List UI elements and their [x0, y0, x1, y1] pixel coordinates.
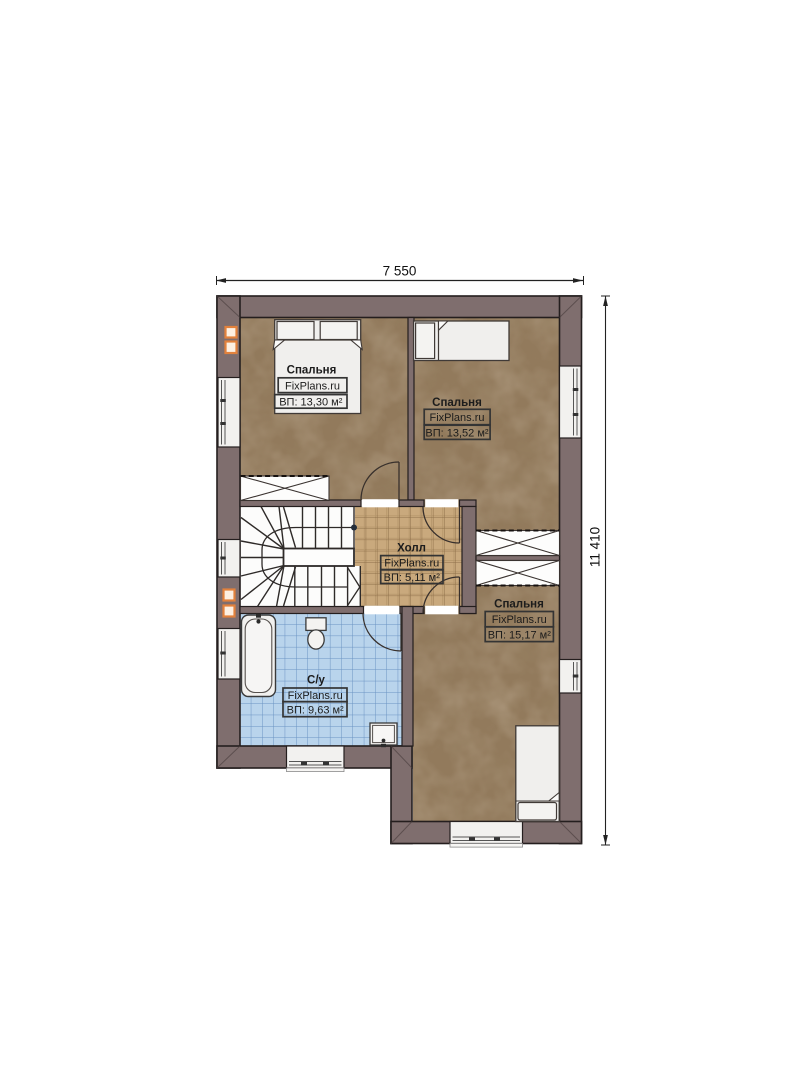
svg-text:С/у: С/у: [307, 674, 326, 686]
svg-text:ВП: 5,11 м²: ВП: 5,11 м²: [384, 572, 441, 584]
svg-text:FixPlans.ru: FixPlans.ru: [285, 380, 340, 392]
svg-text:Холл: Холл: [397, 542, 426, 554]
svg-text:Спальня: Спальня: [494, 599, 544, 611]
svg-text:11 410: 11 410: [588, 527, 603, 567]
svg-text:Спальня: Спальня: [287, 365, 337, 377]
svg-text:ВП: 13,52 м²: ВП: 13,52 м²: [425, 427, 489, 439]
svg-text:FixPlans.ru: FixPlans.ru: [288, 690, 343, 702]
svg-text:FixPlans.ru: FixPlans.ru: [384, 558, 439, 570]
svg-text:Спальня: Спальня: [432, 397, 482, 409]
svg-text:FixPlans.ru: FixPlans.ru: [492, 614, 547, 626]
svg-text:ВП: 9,63 м²: ВП: 9,63 м²: [287, 705, 344, 717]
svg-text:FixPlans.ru: FixPlans.ru: [429, 412, 484, 424]
svg-text:ВП: 15,17 м²: ВП: 15,17 м²: [488, 629, 552, 641]
svg-text:7 550: 7 550: [383, 264, 417, 279]
svg-text:ВП: 13,30 м²: ВП: 13,30 м²: [279, 396, 343, 408]
